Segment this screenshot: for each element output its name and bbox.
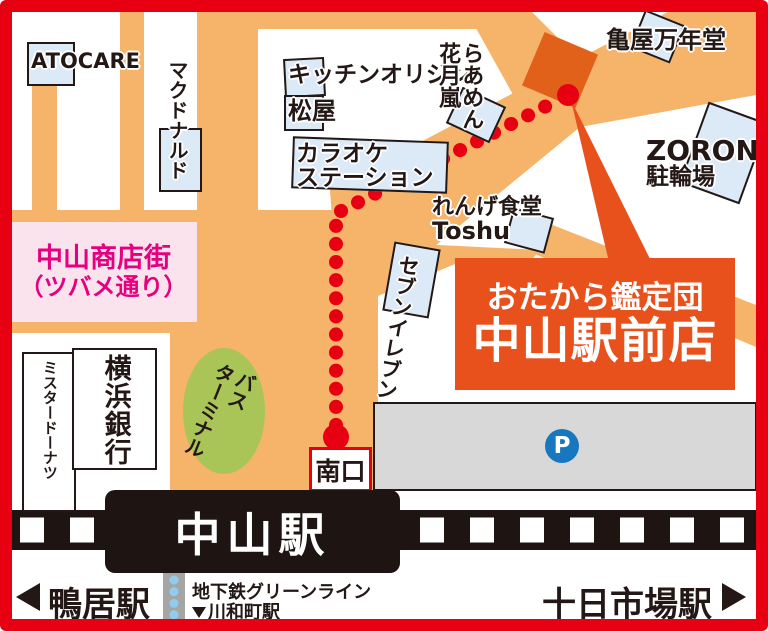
access-map: ミスタードーナツ 横浜銀行 中山商店街 （ツバメ通り） バス ターミナル ATO… bbox=[0, 0, 768, 631]
center-road bbox=[197, 10, 258, 220]
kawawacho-station-label: 川和町駅 bbox=[192, 598, 280, 624]
callout-line1: おたから鑑定団 bbox=[487, 281, 704, 315]
renge-label: れんげ食堂 Toshu bbox=[432, 196, 542, 244]
bus-terminal: バス ターミナル bbox=[183, 348, 265, 474]
parking-icon: P bbox=[545, 429, 579, 463]
nakayama-station: 中山駅 bbox=[105, 490, 400, 573]
mister-donut-building: ミスタードーナツ bbox=[22, 352, 76, 512]
yokohama-bank-label: 横浜銀行 bbox=[100, 354, 128, 466]
arrow-down-icon bbox=[192, 607, 206, 618]
arrow-left-icon bbox=[16, 583, 40, 611]
shopping-street-sign: 中山商店街 （ツバメ通り） bbox=[10, 222, 197, 322]
atocare-label: ATOCARE bbox=[31, 50, 140, 72]
mcdonalds-label: マクドナルド bbox=[166, 60, 187, 192]
kamoi-station-label: 鴨居駅 bbox=[48, 577, 150, 626]
left-road-1 bbox=[32, 85, 57, 225]
kameya-label: 亀屋万年堂 bbox=[606, 28, 726, 53]
route-destination-dot bbox=[557, 84, 579, 106]
ramen-label: らあめん 花月嵐 bbox=[436, 42, 482, 138]
shopping-street-line1: 中山商店街 bbox=[36, 243, 171, 274]
bus-terminal-label: バス ターミナル bbox=[180, 359, 258, 468]
tokaichiba-station-label: 十日市場駅 bbox=[542, 577, 712, 626]
arrow-right-icon bbox=[722, 583, 746, 611]
karaoke-label: カラオケ ステーション bbox=[296, 142, 434, 190]
destination-callout: おたから鑑定団 中山駅前店 bbox=[455, 258, 735, 390]
matsuya-label: 松屋 bbox=[288, 99, 336, 124]
zoron-label: ZORON 駐輪場 bbox=[646, 136, 759, 190]
left-road-2 bbox=[120, 10, 144, 224]
south-exit-sign: 南口 bbox=[309, 447, 372, 492]
mister-donut-label: ミスタードーナツ bbox=[41, 360, 57, 480]
yokohama-bank-building: 横浜銀行 bbox=[72, 348, 157, 470]
shopping-street-line2: （ツバメ通り） bbox=[20, 274, 188, 302]
callout-line2: 中山駅前店 bbox=[472, 315, 717, 368]
